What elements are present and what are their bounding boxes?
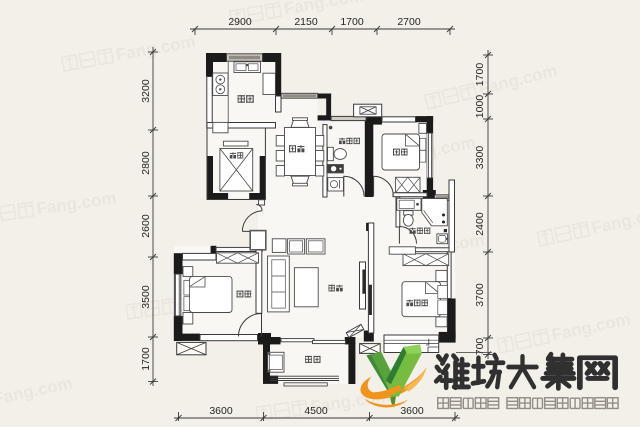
svg-text:1700: 1700 — [474, 63, 486, 87]
svg-text:3200: 3200 — [140, 79, 152, 103]
svg-text:2800: 2800 — [140, 151, 152, 175]
svg-text:3600: 3600 — [400, 405, 424, 417]
svg-text:2900: 2900 — [228, 16, 252, 28]
svg-text:3500: 3500 — [140, 285, 152, 309]
svg-text:2400: 2400 — [474, 212, 486, 236]
svg-text:1000: 1000 — [474, 95, 486, 119]
svg-text:3700: 3700 — [474, 283, 486, 307]
svg-text:3600: 3600 — [209, 405, 233, 417]
svg-text:3300: 3300 — [474, 146, 486, 170]
svg-text:1700: 1700 — [340, 16, 364, 28]
svg-text:2700: 2700 — [397, 16, 421, 28]
svg-text:1700: 1700 — [140, 347, 152, 371]
svg-text:4500: 4500 — [304, 405, 328, 417]
svg-text:2150: 2150 — [294, 16, 318, 28]
svg-text:2600: 2600 — [140, 214, 152, 238]
